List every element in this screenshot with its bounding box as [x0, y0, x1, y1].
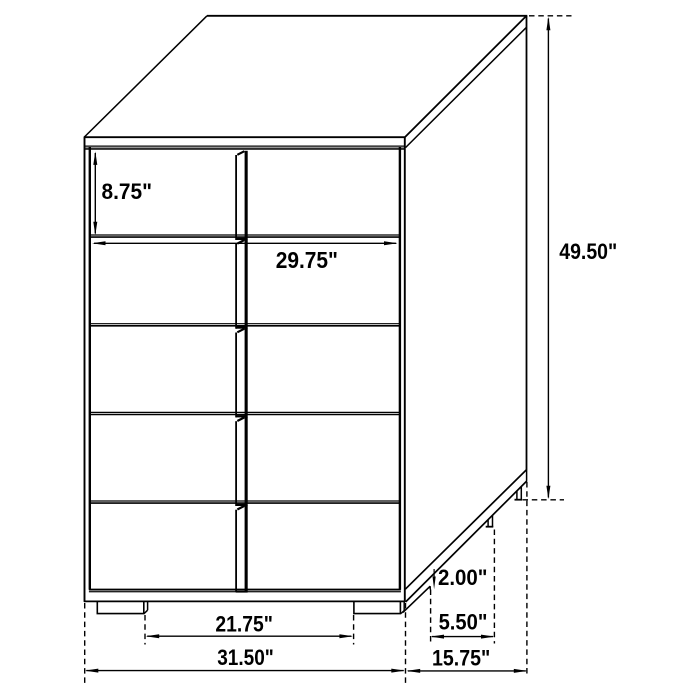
svg-text:2.00": 2.00" — [438, 565, 488, 590]
svg-text:31.50": 31.50" — [217, 645, 274, 670]
svg-text:5.50": 5.50" — [439, 609, 488, 634]
svg-text:21.75": 21.75" — [215, 611, 273, 636]
svg-text:8.75": 8.75" — [102, 179, 153, 204]
svg-text:49.50": 49.50" — [559, 239, 617, 264]
svg-text:29.75": 29.75" — [276, 247, 338, 273]
svg-text:15.75": 15.75" — [432, 646, 490, 671]
